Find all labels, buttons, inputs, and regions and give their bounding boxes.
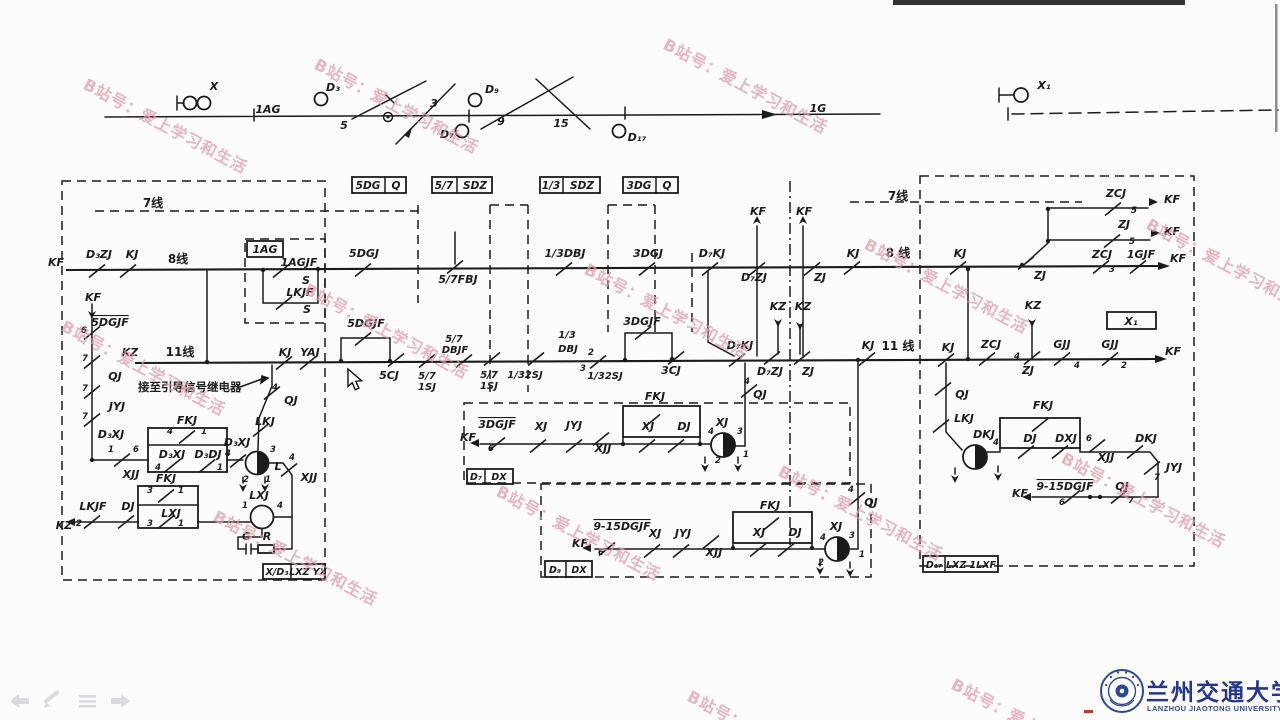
watermark-layer: B站号：爱上学习和生活 B站号：爱上学习和生活 B站号：爱上学习和生活 B站号：… — [58, 35, 1280, 720]
diagram-label: DJ — [677, 420, 690, 433]
left-block-labels: KF D₃ZJ KJ KF 5DGJF QJ JYJ D₃XJ XJJ FKJ … — [48, 243, 399, 543]
diagram-label: DJ — [788, 526, 801, 539]
diagram-label: QJ — [108, 370, 121, 383]
diagram-label: 6 — [133, 445, 139, 455]
diagram-label: KZ — [795, 300, 813, 313]
contact-symbol — [528, 353, 544, 366]
contact-symbol — [530, 440, 546, 453]
diagram-label: B站号：爱上学习和生活 — [660, 35, 831, 138]
diagram-label: 5 — [1129, 237, 1135, 247]
diagram-label: B站号：爱上学习和生活 — [311, 55, 482, 158]
contact-symbol — [950, 262, 966, 275]
diagram-label: X₁ — [1036, 79, 1050, 92]
diagram-label: ZJ — [1021, 364, 1034, 377]
contact-symbol — [935, 383, 951, 396]
diagram-label: KF — [460, 431, 477, 444]
diagram-label: 3 — [147, 486, 153, 496]
diagram-label: 1/32SJ — [587, 371, 623, 382]
video-frame: X 1AG D₃ 5 3 D₇ D₉ 9 15 D₁₇ 1G X₁ 7线 8线 … — [0, 0, 1280, 720]
diagram-label: KF — [1170, 252, 1187, 265]
diagram-label: 4 — [271, 383, 278, 393]
diagram-label: 2 — [715, 456, 721, 466]
diagram-label: 3 — [1109, 265, 1115, 275]
diagram-label: JYJ — [107, 400, 125, 413]
contact-symbol — [484, 353, 500, 366]
diagram-label: 4 — [1073, 361, 1080, 371]
university-name-cn: 兰州交通大学 — [1146, 679, 1280, 706]
diagram-label: D₇ — [470, 472, 482, 483]
diagram-label: XJJ — [594, 442, 612, 455]
diagram-label: 2 — [243, 475, 249, 485]
diagram-label: 1 — [201, 427, 207, 437]
contact-symbol — [199, 460, 215, 473]
diagram-label: B站号：爱上学习和生活 — [684, 687, 855, 720]
diagram-label: ZJ — [1117, 218, 1130, 231]
diagram-label: 1/3DBJ — [545, 247, 586, 260]
diagram-label: 6 — [488, 444, 494, 454]
diagram-label: KJ — [126, 248, 139, 261]
diagram-label: XJJ — [1097, 451, 1115, 464]
diagram-label: XJ — [752, 526, 766, 539]
diagram-label: D₃XJ — [159, 448, 186, 461]
diagram-label: KF — [796, 205, 813, 218]
diagram-label: 4 — [819, 533, 826, 543]
diagram-label: Q — [392, 180, 401, 192]
diagram-label: 1 — [178, 486, 184, 496]
diagram-label: D₇ZJ — [741, 271, 767, 284]
diagram-label: ZCJ — [980, 338, 1001, 351]
diagram-label: 7 — [1154, 473, 1160, 483]
contact-symbol — [239, 484, 247, 492]
diagram-label: 4 — [707, 427, 714, 437]
diagram-label: 4 — [276, 501, 283, 511]
diagram-label: 1 — [178, 519, 184, 529]
diagram-label: LXJ — [249, 489, 269, 502]
contact-symbol — [1149, 198, 1158, 206]
contact-symbol — [230, 455, 246, 468]
contact-symbol — [355, 333, 371, 346]
contact-symbol — [1018, 257, 1034, 270]
contact-symbol — [859, 353, 875, 366]
diagram-label: 5DGJ — [349, 247, 379, 260]
diagram-label: 7 — [82, 412, 88, 422]
diagram-label: 3 — [849, 531, 855, 541]
diagram-label: DKJ — [973, 428, 995, 441]
diagram-label: X₁ — [1123, 315, 1137, 328]
track-schematic: X 1AG D₃ 5 3 D₇ D₉ 9 15 D₁₇ 1G X₁ — [105, 77, 1278, 144]
contact-symbol — [566, 440, 582, 453]
diagram-label: 4 — [992, 438, 999, 448]
diagram-label: XJ — [641, 420, 655, 433]
signal-d17-lamp — [613, 125, 626, 138]
diagram-label: B站号：爱上学习和生活 — [301, 280, 472, 383]
diagram-label: SDZ — [463, 180, 487, 192]
diagram-label: XJ — [829, 520, 843, 533]
diagram-label: 1SJ — [418, 382, 436, 393]
university-name-en: LANZHOU JIAOTONG UNIVERSITY — [1147, 704, 1280, 713]
contact-symbol — [120, 265, 136, 278]
signal-d9-lamp — [469, 94, 482, 107]
circuit-diagram: X 1AG D₃ 5 3 D₇ D₉ 9 15 D₁₇ 1G X₁ 7线 8线 … — [0, 0, 1280, 720]
section-header-boxes: 5DGQ 5/7SDZ 1/3SDZ 3DGQ — [352, 177, 678, 193]
contact-symbol — [639, 263, 655, 276]
diagram-label: 5 — [340, 119, 348, 132]
forward-arrow-button[interactable] — [111, 694, 130, 708]
contact-symbol — [668, 440, 684, 453]
contact-symbol — [1105, 203, 1121, 216]
diagram-label: 1SJ — [480, 381, 498, 392]
diagram-label: FKJ — [760, 499, 780, 512]
diagram-label: KJ — [279, 346, 292, 359]
diagram-label: YAJ — [300, 346, 320, 359]
diagram-label: KJ — [847, 247, 860, 260]
contact-symbol — [355, 264, 371, 277]
diagram-label: ZCJ — [1105, 187, 1126, 200]
contact-symbol — [994, 473, 1002, 481]
contact-symbol — [734, 464, 742, 472]
diagram-label: JYJ — [564, 419, 582, 432]
diagram-label: 7线 — [888, 188, 908, 203]
contact-symbol — [644, 545, 660, 558]
pen-button[interactable] — [43, 690, 60, 708]
diagram-label: DJ — [121, 500, 134, 513]
diagram-label: KZ — [56, 519, 74, 532]
diagram-label: 1 — [265, 475, 271, 485]
diagram-label: 4 — [1013, 352, 1020, 362]
diagram-label: D₉ — [485, 83, 499, 96]
diagram-label: 5DG — [356, 180, 381, 192]
contact-symbol — [794, 352, 810, 365]
diagram-label: DKJ — [1135, 432, 1157, 445]
diagram-label: LKJF — [79, 500, 107, 513]
diagram-label: FKJ — [156, 472, 176, 485]
diagram-label: 4 — [743, 377, 750, 387]
diagram-label: ZJ — [813, 271, 826, 284]
diagram-label: 1 — [108, 445, 114, 455]
diagram-label: 5/7 — [418, 371, 436, 382]
diagram-label: 11 线 — [882, 338, 915, 353]
diagram-label: 9 — [497, 115, 505, 128]
diagram-label: 3 — [580, 364, 586, 374]
signal-x-lamp — [184, 97, 197, 110]
diagram-label: KF — [1164, 193, 1181, 206]
diagram-label: 3 — [737, 427, 743, 437]
diagram-label: DJ — [1023, 432, 1036, 445]
diagram-label: FKJ — [177, 414, 197, 427]
contact-symbol — [164, 460, 180, 473]
diagram-label: QJ — [753, 388, 766, 401]
diagram-label: 4 — [288, 453, 295, 463]
signal-d3-lamp — [315, 93, 328, 106]
diagram-label: XJJ — [122, 468, 140, 481]
contact-symbol — [763, 518, 779, 531]
diagram-label: SDZ — [570, 180, 594, 192]
diagram-label: 9-15DGJF — [1036, 480, 1094, 493]
diagram-label: D₃DJ — [194, 448, 221, 461]
diagram-label: 3CJ — [661, 364, 681, 377]
diagram-label: 9-15DGJF — [593, 520, 651, 533]
diagram-label: 5/7 — [445, 334, 463, 345]
diagram-label: 3DGJF — [623, 315, 661, 328]
diagram-label: D₇ZJ — [757, 365, 783, 378]
contact-symbol — [89, 265, 105, 278]
diagram-label: QJ — [955, 388, 968, 401]
diagram-label: XJ — [648, 527, 662, 540]
diagram-label: DX — [571, 565, 587, 576]
diagram-label: B站号：爱上学习和生活 — [1058, 449, 1229, 552]
diagram-label: 4 — [154, 463, 161, 473]
diagram-label: KF — [1012, 487, 1029, 500]
back-arrow-button[interactable] — [10, 694, 29, 708]
contact-symbol — [158, 490, 174, 503]
diagram-label: ZCJ — [1091, 248, 1112, 261]
diagram-label: KF — [1165, 345, 1182, 358]
diagram-label: 11线 — [166, 344, 195, 359]
diagram-label: 5/7 — [480, 370, 498, 381]
diagram-label: 5/7FBJ — [438, 273, 477, 286]
diagram-label: X/D₃ — [265, 567, 290, 578]
diagram-label: DX — [491, 472, 507, 483]
diagram-label: Q — [663, 180, 672, 192]
diagram-label: D₉ — [549, 565, 561, 576]
diagram-label: ZJ — [801, 365, 814, 378]
diagram-label: 3DGJF — [478, 418, 516, 431]
diagram-label: 1AGJF — [281, 256, 318, 269]
diagram-label: B站号：爱上学习和生活 — [948, 675, 1119, 720]
diagram-label: 2 — [588, 348, 594, 358]
diagram-label: 2 — [76, 519, 82, 529]
diagram-label: B站号：爱上学习和生活 — [80, 75, 251, 178]
diagram-label: KJ — [862, 339, 875, 352]
diagram-label: 7线 — [143, 195, 163, 210]
diagram-label: DBJ — [558, 344, 578, 355]
diagram-label: 1GJF — [1127, 248, 1156, 261]
contact-symbol — [774, 319, 782, 327]
contact-symbol — [673, 545, 689, 558]
diagram-label: 1 — [217, 463, 223, 473]
diagram-label: 3 — [270, 445, 276, 455]
diagram-label: JYJ — [673, 527, 691, 540]
diagram-label: QJ — [284, 394, 297, 407]
diagram-label: LXZ 1LXF — [946, 560, 997, 571]
diagram-label: 4 — [166, 427, 173, 437]
diagram-label: D₁₇ — [628, 131, 647, 144]
contact-symbol — [764, 352, 780, 365]
diagram-label: 15 — [553, 117, 569, 130]
university-seal-icon — [1084, 670, 1143, 713]
diagram-label: LKJ — [954, 412, 974, 425]
contact-symbol — [701, 464, 709, 472]
diagram-label: GJJ — [1101, 338, 1118, 351]
contact-symbol — [816, 567, 824, 575]
diagram-label: JYJ — [1164, 461, 1182, 474]
university-logo: 兰州交通大学 LANZHOU JIAOTONG UNIVERSITY — [1084, 670, 1280, 713]
diagram-label: FKJ — [1033, 399, 1053, 412]
diagram-label: 4 — [847, 485, 854, 495]
contact-symbol — [1104, 235, 1120, 248]
contact-symbol — [639, 440, 655, 453]
diagram-label: B站号：爱上学习和生活 — [581, 260, 752, 363]
diagram-label: 1 — [743, 450, 749, 460]
diagram-label: 2 — [1121, 361, 1127, 371]
diagram-label: 6 — [1059, 498, 1065, 508]
top-bar — [893, 0, 1278, 132]
diagram-label: 5/7 — [435, 180, 454, 192]
diagram-label: 5CJ — [379, 369, 399, 382]
diagram-label: D₃XJ — [98, 428, 125, 441]
contact-symbol — [951, 475, 959, 483]
contact-symbol — [750, 544, 766, 557]
d7-row-labels: KF 3DGJF XJ JYJ XJJ FKJ XJ DJ XJ QJ — [460, 388, 767, 455]
contact-symbol — [778, 544, 794, 557]
diagram-label: XJJ — [300, 471, 318, 484]
contact-symbol — [702, 263, 718, 276]
diagram-label: KZ — [770, 300, 788, 313]
diagram-label: 1AG — [252, 243, 277, 256]
diagram-label: KF — [85, 291, 102, 304]
diagram-label: 4 — [224, 449, 231, 459]
diagram-label: 8线 — [168, 251, 188, 266]
diagram-label: 2 — [818, 558, 824, 568]
diagram-label: 1/3 — [542, 180, 560, 192]
diagram-label: B站号：爱上学习和生活 — [210, 507, 381, 610]
diagram-label: 3 — [430, 97, 438, 110]
diagram-label: XJJ — [705, 546, 723, 559]
diagram-label: 1AG — [255, 103, 280, 116]
annotation-toolbar — [10, 690, 130, 708]
diagram-label: 5DGJF — [91, 316, 129, 329]
diagram-label: L — [274, 460, 281, 473]
diagram-label: D₇KJ — [699, 247, 726, 260]
diagram-label: KJ — [954, 247, 967, 260]
mouse-cursor — [348, 369, 362, 390]
diagram-label: 1 — [242, 501, 248, 511]
diagram-label: GJJ — [1053, 338, 1070, 351]
diagram-label: 6 — [1086, 434, 1092, 444]
diagram-label: XJ — [715, 416, 729, 429]
diagram-label: FKJ — [645, 390, 665, 403]
diagram-label: KZ — [1025, 299, 1043, 312]
diagram-label: X — [209, 80, 219, 93]
diagram-label: 7 — [82, 354, 88, 364]
signal-x1-lamp — [1014, 88, 1028, 102]
diagram-label: KF — [750, 205, 767, 218]
contact-symbol — [846, 569, 854, 577]
diagram-label: KJ — [942, 341, 955, 354]
diagram-label: ZJ — [1033, 269, 1046, 282]
diagram-label: 1/32SJ — [507, 370, 543, 381]
contact-symbol — [179, 431, 195, 444]
diagram-label: DXJ — [1055, 432, 1077, 445]
diagram-label: 5 — [1131, 206, 1137, 216]
diagram-label: D₃XJ — [224, 436, 251, 449]
diagram-label: KF — [48, 256, 65, 269]
diagram-label: XJ — [534, 420, 548, 433]
diagram-label: 3DG — [627, 180, 652, 192]
contact-symbol — [281, 464, 297, 477]
list-button[interactable] — [79, 695, 96, 708]
diagram-label: 1/3 — [558, 330, 576, 341]
diagram-label: B站号：爱上学习和生活 — [861, 235, 1032, 338]
diagram-label: LKJ — [255, 415, 275, 428]
diagram-label: S — [303, 303, 311, 316]
diagram-label: 7 — [82, 384, 88, 394]
diagram-label: D₃ZJ — [86, 248, 112, 261]
diagram-label: 3DGJ — [633, 247, 663, 260]
diagram-label: 1 — [859, 550, 865, 560]
diagram-label: 3 — [147, 519, 153, 529]
contact-symbol — [1032, 419, 1048, 432]
